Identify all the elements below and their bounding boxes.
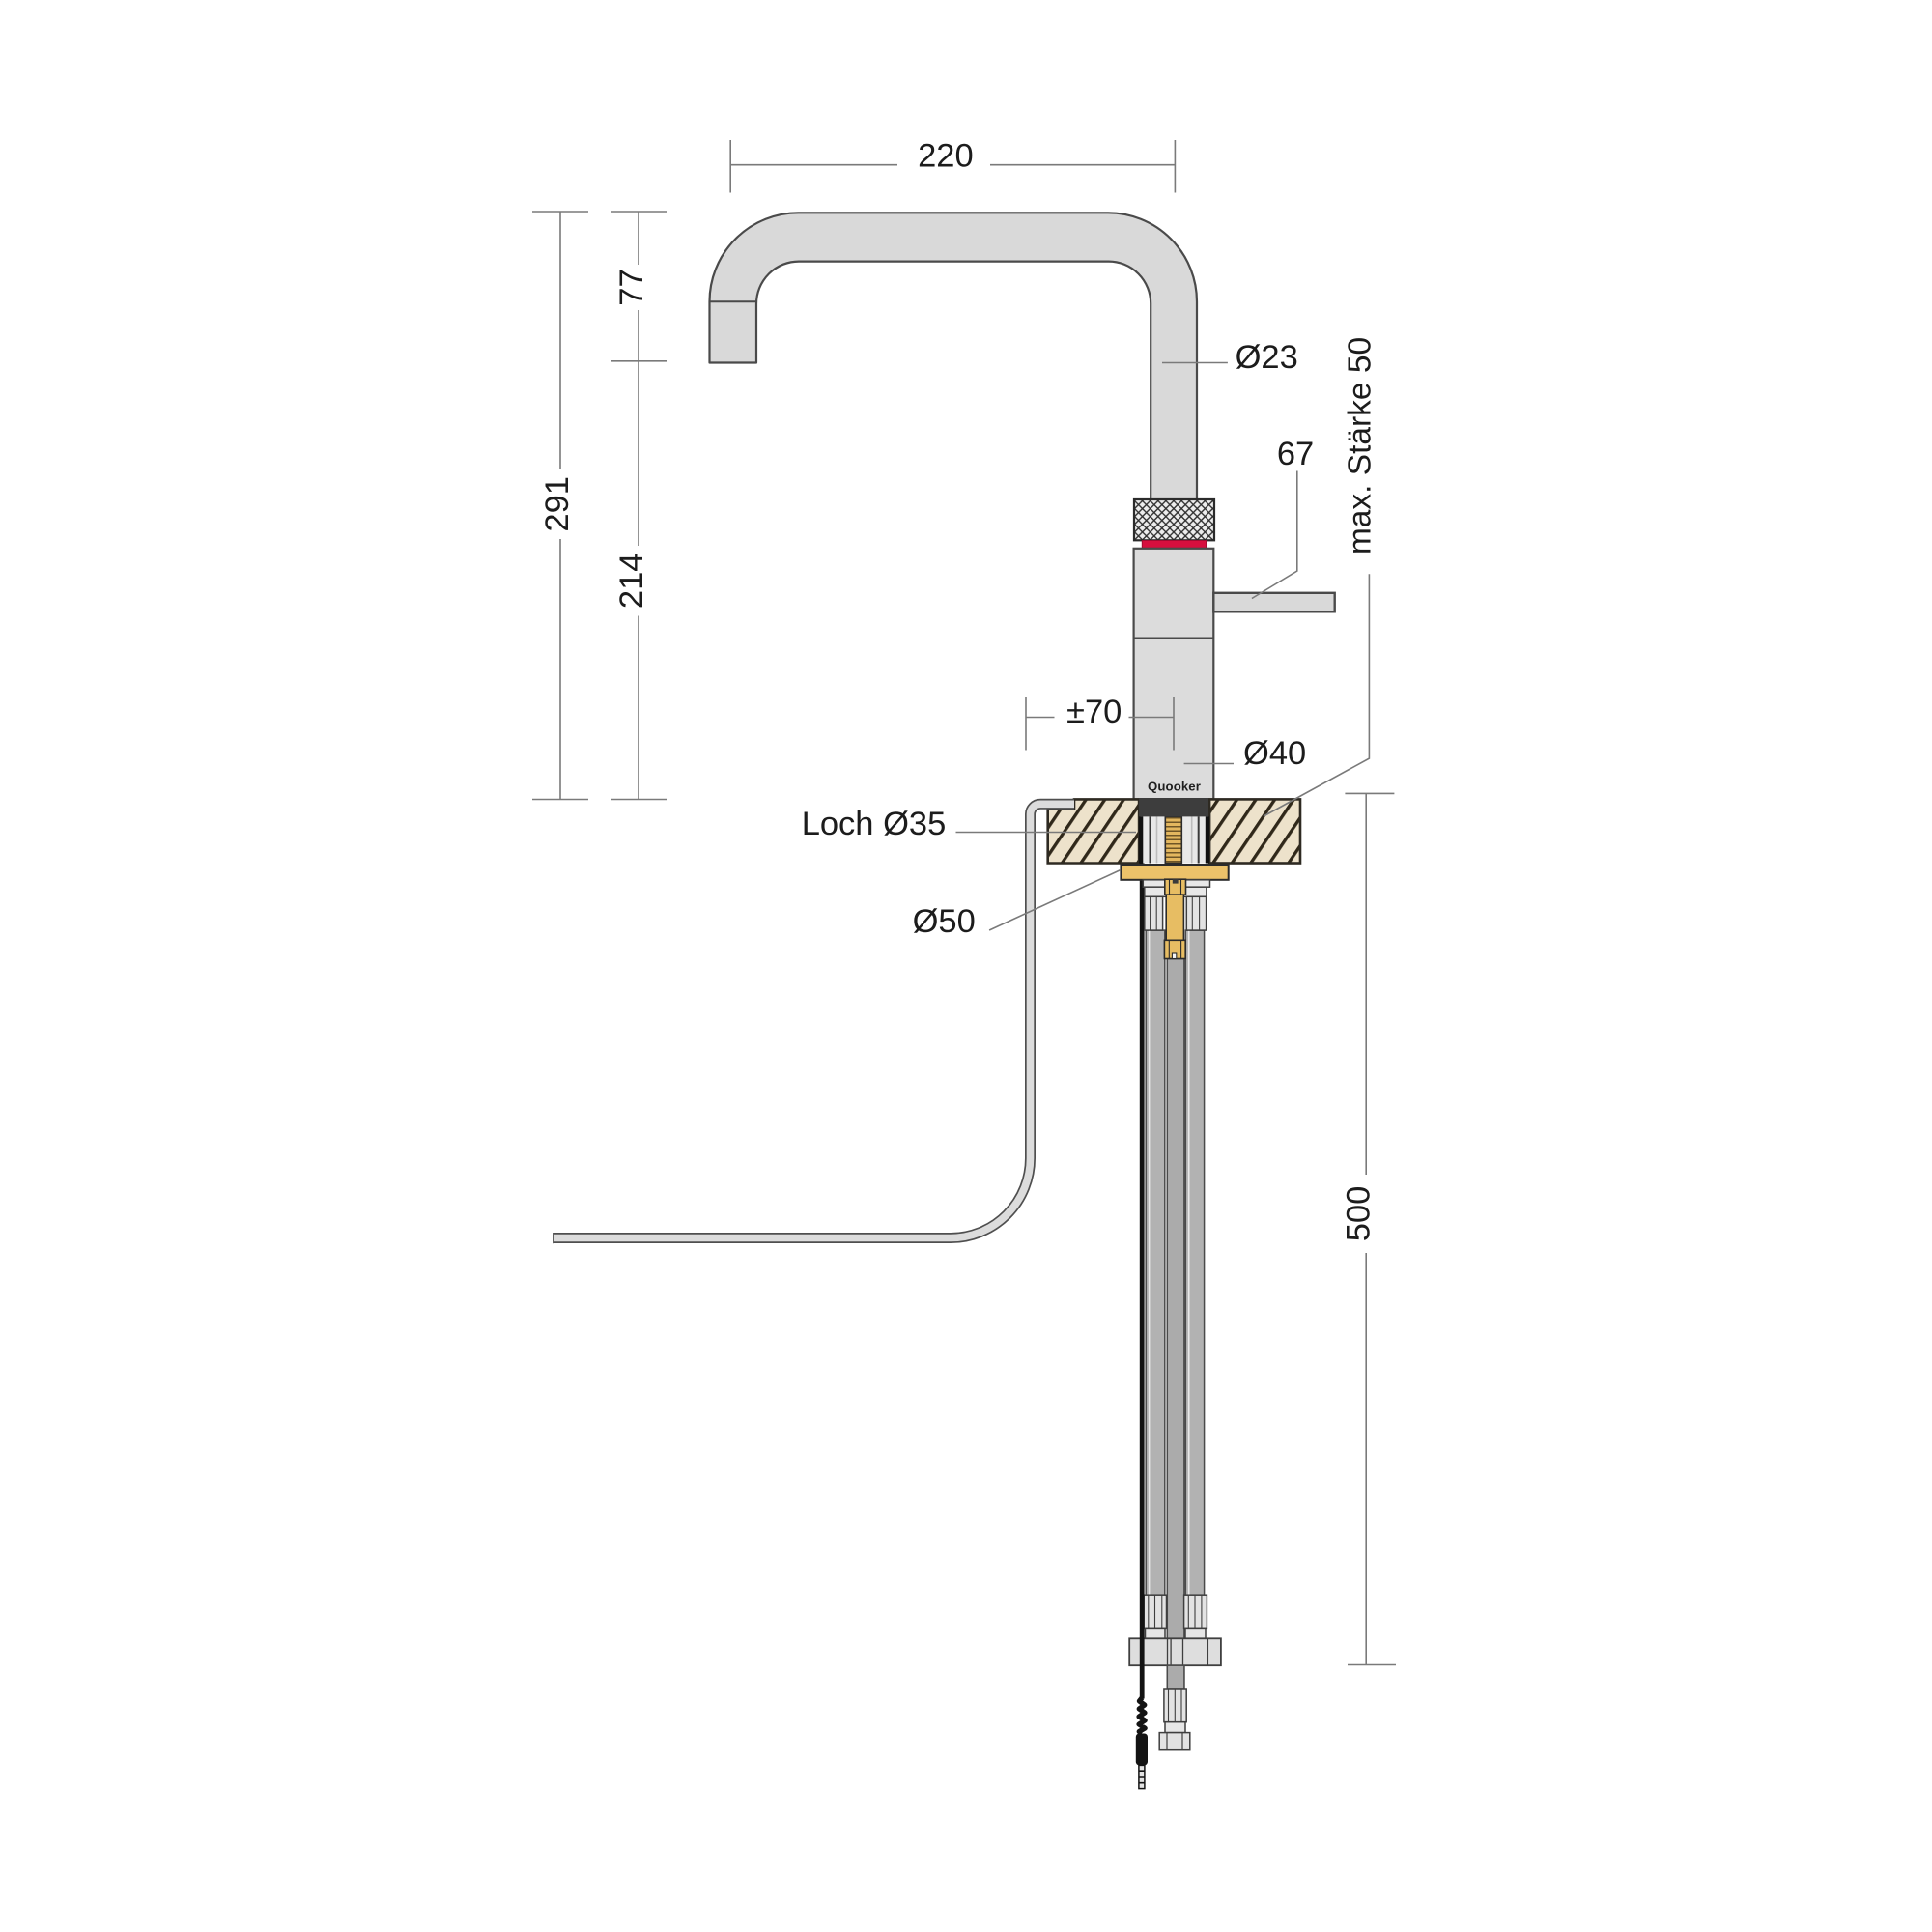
svg-text:214: 214 [613,554,650,610]
svg-text:Loch Ø35: Loch Ø35 [802,806,947,842]
svg-text:max. Stärke 50: max. Stärke 50 [1343,337,1378,554]
svg-text:291: 291 [539,476,576,532]
svg-text:220: 220 [918,138,974,175]
svg-text:±70: ±70 [1066,694,1122,730]
svg-text:Ø23: Ø23 [1236,339,1298,376]
svg-text:Ø40: Ø40 [1243,735,1306,772]
svg-text:77: 77 [613,269,650,305]
svg-text:67: 67 [1277,436,1314,472]
svg-text:Ø50: Ø50 [913,903,976,940]
svg-text:500: 500 [1341,1186,1378,1242]
svg-text:Quooker: Quooker [1148,780,1201,794]
